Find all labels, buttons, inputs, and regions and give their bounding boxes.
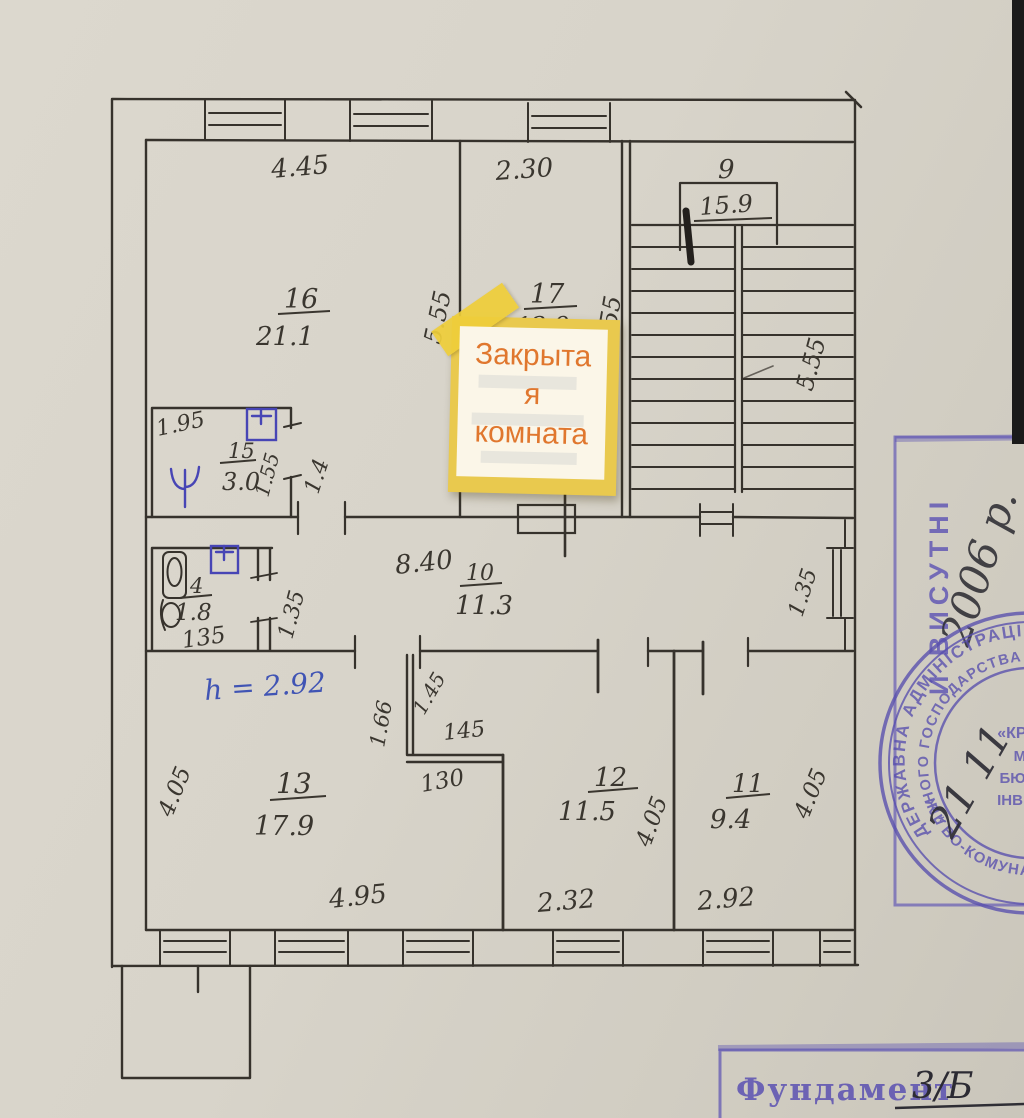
dim-room16-top: 4.45 xyxy=(269,150,330,185)
dim-room17-top: 2.30 xyxy=(493,153,554,187)
dim-room12-right: 4.05 xyxy=(631,793,673,851)
stair-number: 9 xyxy=(718,155,735,185)
dim-room15-right: 1.4 xyxy=(300,456,335,497)
photo-edge-strip xyxy=(1012,0,1024,444)
room15-number: 15 xyxy=(228,439,255,463)
dim-room13-left: 4.05 xyxy=(153,763,197,821)
floorplan-svg: 4.45 2.30 9 15.9 5.55 5.55 5.55 16 21.1 … xyxy=(0,0,1024,1118)
round-stamp-line3: БЮРО ТЕ xyxy=(999,770,1024,787)
room4-number: 4 xyxy=(189,574,203,598)
ink-mark xyxy=(686,211,691,262)
dim-corridor-right: 1.35 xyxy=(784,566,823,620)
room11-number: 11 xyxy=(732,769,764,798)
room17-number: 17 xyxy=(530,279,565,310)
dim-room11-right: 4.05 xyxy=(789,765,833,823)
foundation-stamp: Фундамент 3/Б xyxy=(718,1045,1024,1118)
room13-number: 13 xyxy=(276,767,312,800)
room12-area: 11.5 xyxy=(558,797,616,827)
dim-room11-bottom: 2.92 xyxy=(695,882,756,917)
sticky-note-line3: комната xyxy=(474,413,588,455)
sink-icon xyxy=(171,467,199,507)
dim-notch-bottom: 130 xyxy=(419,765,467,798)
dim-room15-top: 1.95 xyxy=(154,407,207,442)
round-stamp-line4: ІНВЕНТАР xyxy=(997,792,1024,809)
dim-corridor: 8.40 xyxy=(394,545,455,581)
dim-notch-left: 1.66 xyxy=(365,699,397,749)
round-stamp-line2: МІЖМ xyxy=(1014,748,1024,765)
room4-area: 1.8 xyxy=(175,600,212,626)
dim-notch-top: 145 xyxy=(442,717,486,746)
dim-room4-right: 1.35 xyxy=(274,588,311,642)
dim-room4-bottom: 135 xyxy=(180,622,227,654)
foundation-value: 3/Б xyxy=(912,1066,974,1107)
plan-labels: 4.45 2.30 9 15.9 5.55 5.55 5.55 16 21.1 … xyxy=(153,150,833,919)
room16-area: 21.1 xyxy=(255,322,314,352)
dim-room13-bottom: 4.95 xyxy=(327,879,389,915)
room13-area: 17.9 xyxy=(254,811,314,842)
dim-room15-door: 1.55 xyxy=(250,450,285,499)
room11-area: 9.4 xyxy=(710,805,751,835)
dim-room12-bottom: 2.32 xyxy=(535,884,596,919)
room10-number: 10 xyxy=(466,561,494,586)
sticky-note: Закрыта я комната xyxy=(448,316,620,496)
sticky-note-line1: Закрыта xyxy=(475,335,592,377)
room16-number: 16 xyxy=(284,284,318,315)
sticky-note-paper: Закрыта я комната xyxy=(456,326,608,480)
stair-area: 15.9 xyxy=(698,189,753,221)
room10-area: 11.3 xyxy=(455,591,513,621)
ceiling-height-note: h = 2.92 xyxy=(203,666,327,707)
floorplan-photo: 4.45 2.30 9 15.9 5.55 5.55 5.55 16 21.1 … xyxy=(0,0,1024,1118)
sticky-note-line2: я xyxy=(524,375,541,414)
dim-stair-side: 5.55 xyxy=(791,335,832,394)
